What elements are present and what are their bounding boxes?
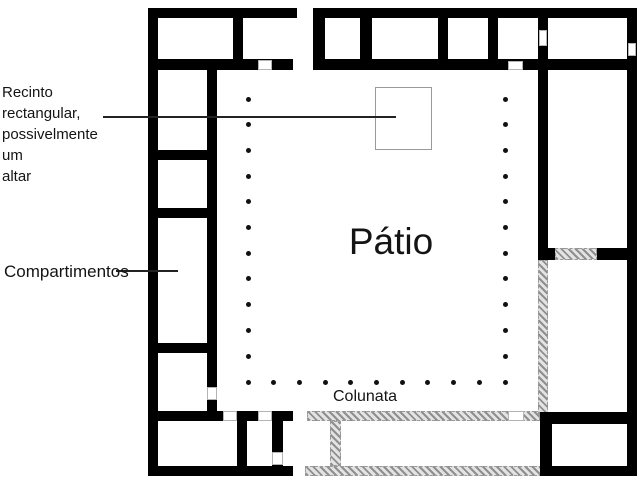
colonnade-column-dot [503, 276, 508, 281]
bottom-band-divider-hatched [330, 421, 341, 466]
colonnade-column-dot [271, 380, 276, 385]
right-column-inner-wall-hatched [538, 260, 548, 415]
outer-wall-bottom-hatched [305, 466, 542, 476]
top-band-divider-2 [313, 8, 325, 70]
colonnade-column-dot [374, 380, 379, 385]
outer-wall-bottom-right [540, 466, 637, 476]
compartments-label: Compartimentos [4, 262, 129, 282]
outer-wall-top-left [148, 8, 297, 18]
colonnade-column-dot [246, 328, 251, 333]
colonnade-column-dot [503, 174, 508, 179]
colonnade-column-dot [503, 380, 508, 385]
doorway-top-band-room6 [508, 61, 523, 70]
left-column-divider-2 [157, 208, 207, 218]
colonnade-column-dot [503, 302, 508, 307]
colonnade-label: Colunata [333, 388, 397, 406]
doorway-south-wall-1 [223, 411, 237, 421]
left-column-divider-3 [157, 343, 207, 353]
altar-note-label: Recinto rectangular, possivelmente um al… [2, 82, 120, 187]
colonnade-column-dot [246, 302, 251, 307]
colonnade-column-dot [400, 380, 405, 385]
altar-leader-line [103, 116, 396, 118]
colonnade-column-dot [425, 380, 430, 385]
colonnade-column-dot [503, 251, 508, 256]
courtyard-label: Pátio [331, 221, 451, 263]
colonnade-column-dot [246, 97, 251, 102]
floor-plan: Recinto rectangular, possivelmente um al… [0, 0, 640, 479]
top-band-divider-4 [438, 8, 448, 70]
left-column-divider-1 [157, 150, 207, 160]
doorway-outer-right-wall [628, 43, 636, 56]
colonnade-column-dot [297, 380, 302, 385]
left-column-inner-wall [207, 59, 217, 421]
doorway-bottom-band-divider-2 [272, 452, 283, 465]
colonnade-column-dot [323, 380, 328, 385]
colonnade-column-dot [246, 354, 251, 359]
doorway-left-column-inner [207, 387, 217, 400]
colonnade-column-dot [503, 328, 508, 333]
colonnade-column-dot [503, 225, 508, 230]
colonnade-column-dot [246, 380, 251, 385]
top-band-divider-3 [360, 8, 372, 70]
south-colonnade-wall-hatched [307, 411, 540, 421]
right-column-divider-black-left [538, 248, 555, 260]
doorway-south-wall-2 [258, 411, 272, 421]
top-band-divider-5 [488, 8, 498, 70]
colonnade-column-dot [246, 148, 251, 153]
bottom-right-room-west-wall [540, 412, 552, 476]
doorway-south-colonnade-wall [508, 411, 524, 421]
colonnade-column-dot [348, 380, 353, 385]
top-band-divider-1 [233, 8, 243, 70]
colonnade-column-dot [451, 380, 456, 385]
outer-wall-bottom-left [148, 466, 293, 476]
right-column-divider-black-right [597, 248, 627, 260]
doorway-top-band-room2 [258, 60, 272, 70]
colonnade-column-dot [246, 199, 251, 204]
colonnade-column-dot [503, 199, 508, 204]
colonnade-column-dot [246, 276, 251, 281]
colonnade-column-dot [503, 354, 508, 359]
right-column-inner-wall-black [538, 70, 548, 260]
doorway-top-band-divider-6 [539, 30, 547, 46]
colonnade-column-dot [246, 225, 251, 230]
bottom-right-room-north-wall [540, 412, 637, 424]
colonnade-column-dot [503, 122, 508, 127]
outer-wall-right [627, 8, 637, 476]
colonnade-column-dot [503, 97, 508, 102]
colonnade-column-dot [246, 122, 251, 127]
colonnade-column-dot [246, 174, 251, 179]
colonnade-column-dot [503, 148, 508, 153]
right-column-divider-hatched [555, 248, 597, 260]
outer-wall-left [148, 8, 158, 476]
bottom-band-divider-1 [237, 421, 247, 466]
colonnade-column-dot [477, 380, 482, 385]
altar-rectangle [375, 87, 432, 150]
colonnade-column-dot [246, 251, 251, 256]
